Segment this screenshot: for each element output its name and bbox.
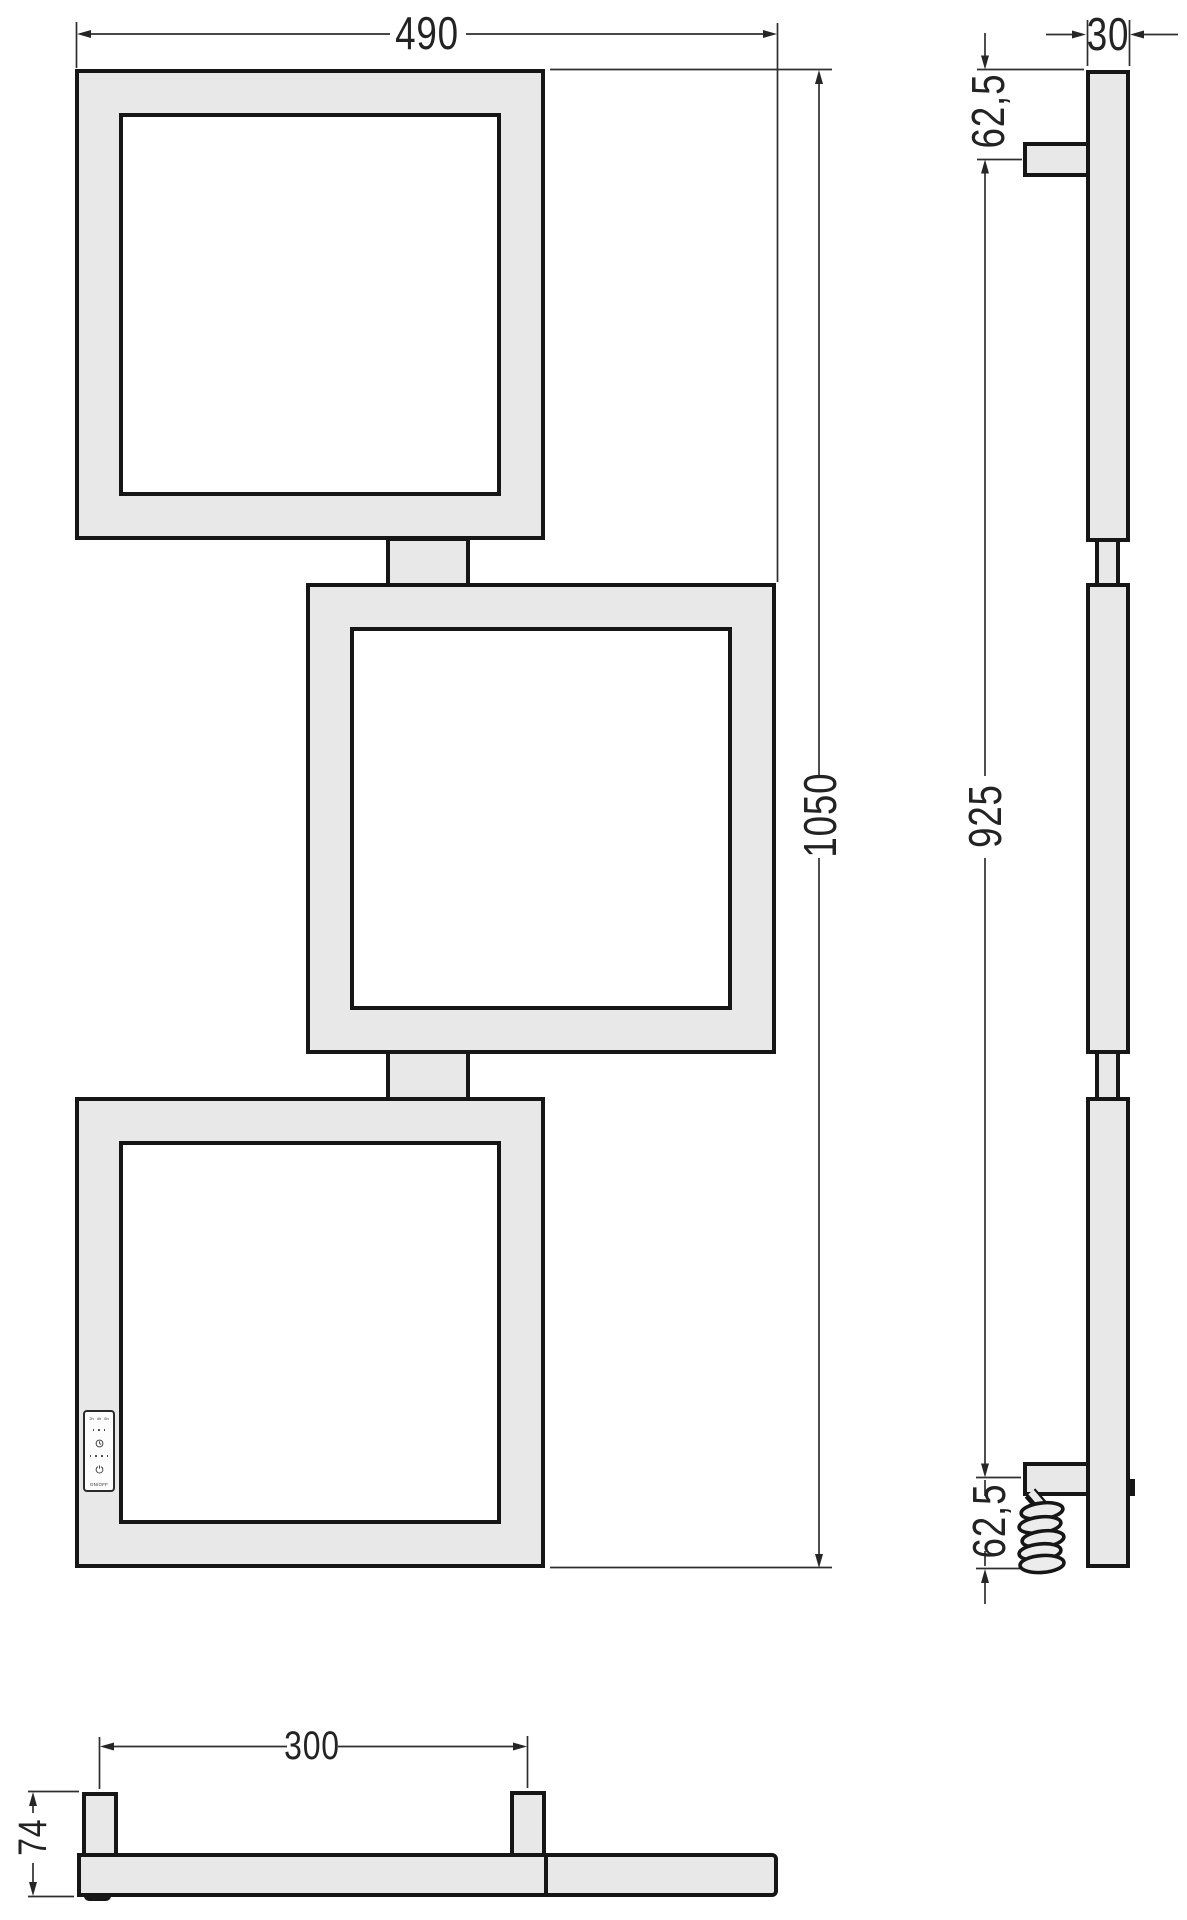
dim-label-overall-width: 490 bbox=[395, 10, 459, 56]
bottom-rail-front-section bbox=[77, 1853, 548, 1897]
side-rail-segment-bottom bbox=[1086, 1097, 1130, 1568]
bottom-square-opening bbox=[119, 1141, 501, 1524]
bottom-rail-rear-section bbox=[544, 1853, 778, 1897]
dim-label-top-bracket-offset: 62,5 bbox=[965, 74, 1011, 149]
rail-connector-lower bbox=[1095, 1050, 1120, 1101]
power-icon bbox=[95, 1465, 104, 1474]
middle-square-opening bbox=[350, 627, 732, 1010]
dim-label-overall-height: 1050 bbox=[797, 773, 843, 858]
timer-label-4h: 4h bbox=[97, 1416, 101, 1421]
mounting-tab-left bbox=[82, 1792, 118, 1857]
side-rail-segment-middle bbox=[1086, 583, 1130, 1054]
control-panel: 2h 4h 6h ON/OFF bbox=[83, 1410, 115, 1492]
on-off-label: ON/OFF bbox=[90, 1482, 108, 1487]
technical-drawing-canvas: 2h 4h 6h ON/OFF bbox=[0, 0, 1187, 1920]
heating-element-notch bbox=[1129, 1479, 1135, 1496]
dim-label-profile-depth: 30 bbox=[1087, 11, 1130, 57]
top-square-frame bbox=[75, 69, 545, 540]
dim-label-bracket-span: 925 bbox=[962, 784, 1008, 848]
dim-label-bracket-spacing: 300 bbox=[284, 1726, 340, 1766]
rail-connector-upper bbox=[1095, 538, 1120, 587]
wall-bracket-top bbox=[1023, 142, 1090, 177]
frame-connector-upper bbox=[386, 537, 470, 587]
power-cable-coil bbox=[1018, 1492, 1065, 1574]
side-rail-segment-top bbox=[1086, 70, 1130, 542]
timer-label-6h: 6h bbox=[104, 1416, 108, 1421]
timer-icon bbox=[95, 1439, 104, 1448]
status-indicator-dots bbox=[90, 1455, 108, 1457]
middle-square-frame bbox=[306, 583, 776, 1054]
dim-label-bottom-bracket-offset: 62,5 bbox=[966, 1484, 1012, 1559]
mounting-tab-right bbox=[510, 1791, 546, 1857]
wall-bracket-bottom bbox=[1023, 1462, 1090, 1496]
timer-duration-labels: 2h 4h 6h bbox=[89, 1416, 108, 1421]
bottom-square-frame bbox=[75, 1097, 545, 1568]
timer-indicator-dots bbox=[93, 1429, 106, 1431]
frame-connector-lower bbox=[386, 1050, 470, 1101]
dim-label-mount-depth: 74 bbox=[13, 1819, 53, 1856]
top-square-opening bbox=[119, 113, 501, 496]
timer-label-2h: 2h bbox=[89, 1416, 93, 1421]
